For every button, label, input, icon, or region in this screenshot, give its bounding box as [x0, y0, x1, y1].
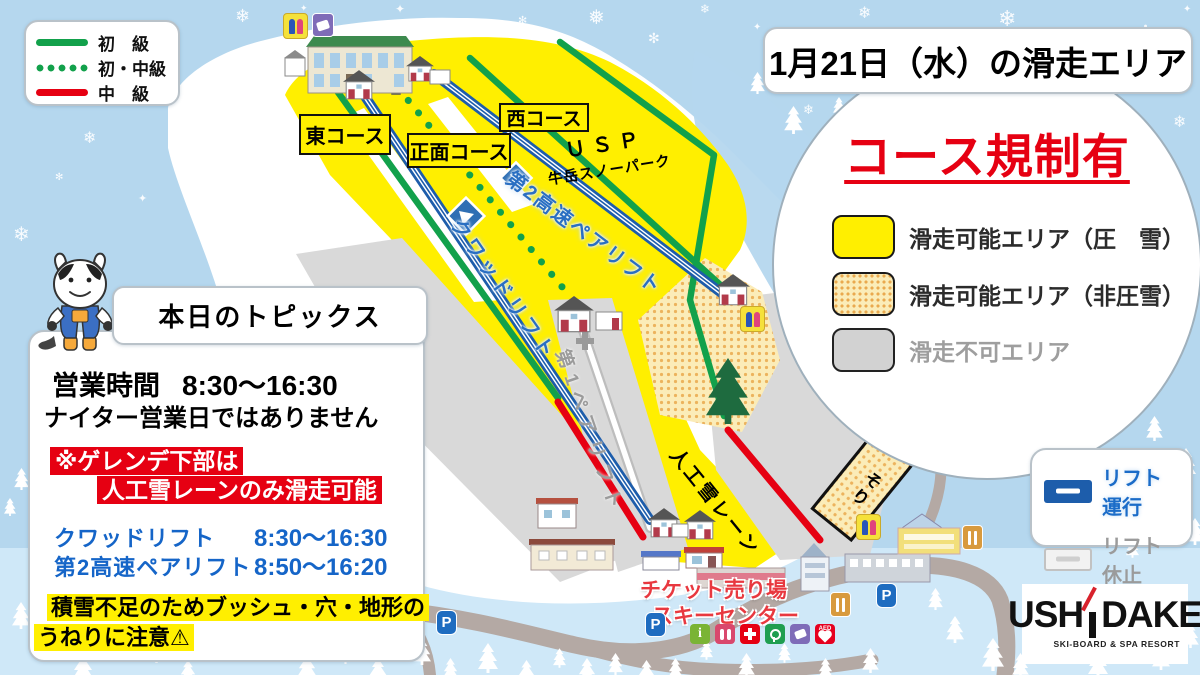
restriction-label: 滑走不可エリア: [909, 333, 1070, 367]
facility-icon: [312, 13, 334, 37]
lift-status-legend: リフト運行 リフト休止: [1030, 448, 1193, 547]
ticket-line1: チケット売り場: [640, 578, 799, 604]
course-label-text: 西コース: [506, 104, 581, 131]
first-aid-icon: [740, 624, 760, 644]
topics-heading-text: 本日のトピックス: [158, 297, 381, 334]
green-line-swatch: [36, 39, 88, 46]
heart-icon: [819, 631, 830, 642]
restroom-icon: [283, 13, 308, 39]
restaurant-icon: [962, 525, 983, 550]
lift-hours: 8:50～16:20: [254, 547, 387, 582]
restaurant-icon: [830, 592, 851, 617]
legend-label: 初・中級: [98, 55, 166, 80]
legend-row-intermediate: 中 級: [36, 80, 168, 105]
restroom-icon: [740, 306, 765, 332]
page-title: 1月21日（水）の滑走エリア: [769, 37, 1187, 85]
parking-icon: P: [436, 610, 457, 635]
date-title-banner: 1月21日（水）の滑走エリア: [763, 27, 1193, 94]
red-line-swatch: [36, 89, 88, 96]
village-building-icon: [536, 498, 578, 528]
warning-text: 人工雪レーンのみ滑走可能: [97, 476, 382, 504]
resort-logo: USH DAKE SKI-BOARD & SPA RESORT: [1022, 584, 1188, 664]
lift-stopped-swatch: [1044, 548, 1092, 571]
logo-text-dake: DAKE: [1101, 597, 1200, 632]
course-label-west: 西コース: [499, 103, 589, 132]
warning-line2: 人工雪レーンのみ滑走可能: [97, 471, 382, 505]
ski-trail-map-graphic: ❄ ✦ ❅ ✻ ❄ ✦ ❄ ✻ ✦ ❄ ❄ ✻ ✦ ❄ ✦ ❄ ✻ ❄ ❄ ✦ …: [0, 0, 1200, 675]
restriction-row-ungroomed: 滑走可能エリア（非圧雪）: [832, 272, 1185, 316]
lift-hours-row: 第2高速ペアリフト 8:50～16:20: [54, 547, 387, 582]
lift-station-icon: [596, 312, 622, 330]
facility-icon-row: i AED: [690, 624, 840, 644]
restroom-icon: [856, 514, 881, 540]
course-label-east: 東コース: [299, 114, 391, 155]
lift-station-icon: [672, 524, 688, 537]
course-label-front: 正面コース: [407, 133, 511, 168]
restriction-info-circle: コース規制有 滑走可能エリア（圧 雪） 滑走可能エリア（非圧雪） 滑走不可エリア: [772, 50, 1200, 480]
logo-text-ush: USH: [1008, 597, 1083, 632]
restriction-label: 滑走可能エリア（非圧雪）: [909, 277, 1185, 311]
parking-icon: P: [645, 612, 666, 637]
lift-running-row: リフト運行: [1044, 462, 1179, 520]
ungroomed-area-swatch: [832, 272, 895, 316]
parking-icon: P: [876, 583, 897, 608]
lift-station-icon: [430, 70, 450, 84]
caution-line2: うねりに注意⚠: [34, 620, 194, 652]
topics-box: 営業時間 8:30～16:30 ナイター営業日ではありません ※ゲレンデ下部は …: [28, 330, 425, 662]
green-dotted-swatch: [36, 64, 88, 72]
course-label-text: 東コース: [306, 120, 385, 149]
lift-stopped-row: リフト休止: [1044, 530, 1179, 588]
restriction-label: 滑走可能エリア（圧 雪）: [909, 220, 1185, 254]
lift-stopped-label: リフト休止: [1102, 530, 1179, 588]
lift-name: 第2高速ペアリフト: [54, 550, 254, 582]
spa-building-icon: [898, 514, 960, 554]
lift-running-swatch: [1044, 480, 1092, 503]
restriction-heading: コース規制有: [774, 118, 1200, 187]
course-label-text: 正面コース: [410, 136, 509, 165]
info-icon: i: [690, 624, 710, 644]
village-building-icon: [641, 551, 681, 570]
closed-area-swatch: [832, 328, 895, 372]
village-building-icon: [845, 554, 930, 582]
lift-running-label: リフト運行: [1102, 462, 1179, 520]
shower-icon: [790, 624, 810, 644]
locker-icon: [765, 624, 785, 644]
difficulty-legend: 初 級 初・中級 中 級: [24, 20, 180, 106]
caution-text: 積雪不足のためブッシュ・穴・地形の: [47, 594, 429, 621]
logo-slash-i-icon: [1084, 592, 1100, 632]
caution-text: うねりに注意⚠: [34, 624, 194, 651]
restriction-row-closed: 滑走不可エリア: [832, 328, 1070, 372]
legend-label: 中 級: [98, 80, 149, 105]
village-building-icon: [684, 547, 724, 568]
restroom-icon: [715, 624, 735, 644]
aed-icon: AED: [815, 624, 835, 644]
topics-header: 本日のトピックス: [112, 286, 428, 345]
caution-line1: 積雪不足のためブッシュ・穴・地形の: [47, 590, 429, 622]
groomed-area-swatch: [832, 215, 895, 259]
legend-label: 初 級: [98, 30, 149, 55]
village-building-icon: [529, 539, 615, 570]
night-notice: ナイター営業日ではありません: [44, 398, 378, 433]
legend-row-beginner: 初 級: [36, 30, 168, 55]
restriction-row-groomed: 滑走可能エリア（圧 雪）: [832, 215, 1185, 259]
legend-row-beginner-intermediate: 初・中級: [36, 55, 168, 80]
logo-subtitle: SKI-BOARD & SPA RESORT: [1030, 639, 1180, 649]
